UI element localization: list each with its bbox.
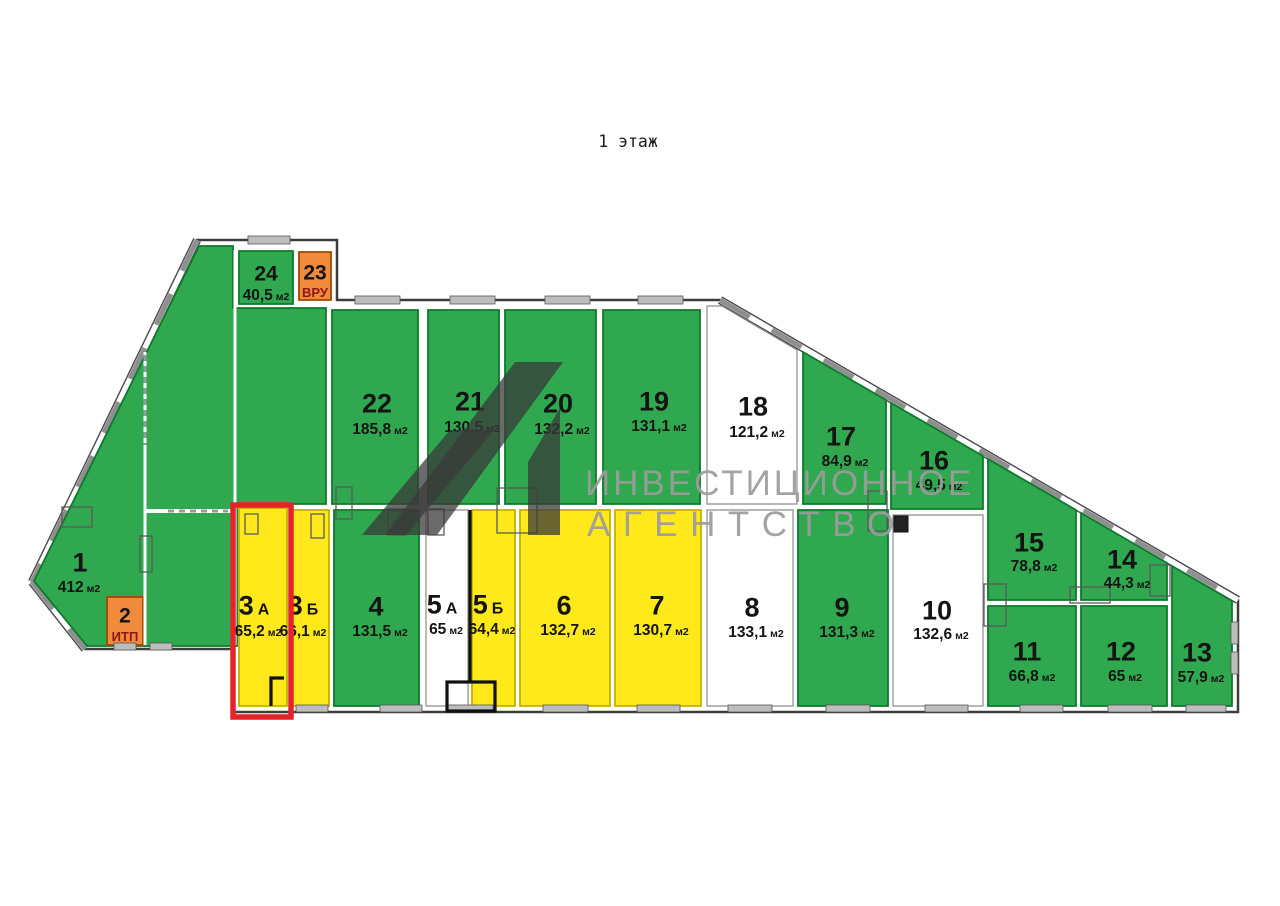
unit-number-label: 10 <box>922 596 952 626</box>
unit-number-label: 6 <box>556 591 571 621</box>
wall-window-tick <box>543 705 588 712</box>
unit-number-label: 1 <box>72 548 87 578</box>
unit-subtitle-label: ИТП <box>112 629 139 644</box>
wall-window-tick <box>728 705 772 712</box>
wall-window-tick <box>1231 622 1238 644</box>
wall-window-tick <box>380 705 422 712</box>
unit-number-label: 13 <box>1182 638 1212 668</box>
unit-number-label: 18 <box>738 392 768 422</box>
floor-plan-canvas: 1 этаж 1412м22ИТП2440,5м223ВРУ22185,8м22… <box>0 0 1280 906</box>
unit-number-label: 22 <box>362 389 392 419</box>
wall-window-tick <box>638 296 683 304</box>
unit-number-label: 8 <box>744 593 759 623</box>
wall-window-tick <box>1231 652 1238 674</box>
wall-window-tick <box>1020 705 1063 712</box>
wall-window-tick <box>637 705 680 712</box>
wall-window-tick <box>296 705 328 712</box>
unit-subtitle-label: ВРУ <box>302 285 329 300</box>
unit-number-label: 4 <box>368 592 383 622</box>
wall-window-tick <box>1108 705 1152 712</box>
floor-plan-page: 1 этаж 1412м22ИТП2440,5м223ВРУ22185,8м22… <box>0 0 1280 906</box>
wall-window-tick <box>355 296 400 304</box>
unit-number-label: 9 <box>834 593 849 623</box>
unit-number-label: 17 <box>826 422 856 452</box>
wall-window-tick <box>1186 705 1226 712</box>
wall-window-tick <box>150 643 172 650</box>
unit-number-label: 7 <box>649 591 664 621</box>
wall-window-tick <box>925 705 968 712</box>
unit-number-label: 12 <box>1106 637 1136 667</box>
wall-window-tick <box>248 236 290 244</box>
unit-number-label: 19 <box>639 387 669 417</box>
unit-number-label: 15 <box>1014 528 1044 558</box>
unit-number-label: 14 <box>1107 545 1137 575</box>
wall-window-tick <box>826 705 870 712</box>
floor-title: 1 этаж <box>598 132 658 151</box>
watermark-line1: ИНВЕСТИЦИОННОЕ <box>585 464 974 503</box>
unit-number-label: 11 <box>1013 637 1042 667</box>
unit-number-label: 24 <box>254 263 278 286</box>
wall-window-tick <box>450 296 495 304</box>
wall-window-tick <box>114 643 136 650</box>
unit-number-label: 2 <box>119 605 131 628</box>
wall-window-tick <box>545 296 590 304</box>
watermark-line2: АГЕНТСТВО <box>587 505 907 544</box>
unit-number-label: 23 <box>303 262 326 285</box>
